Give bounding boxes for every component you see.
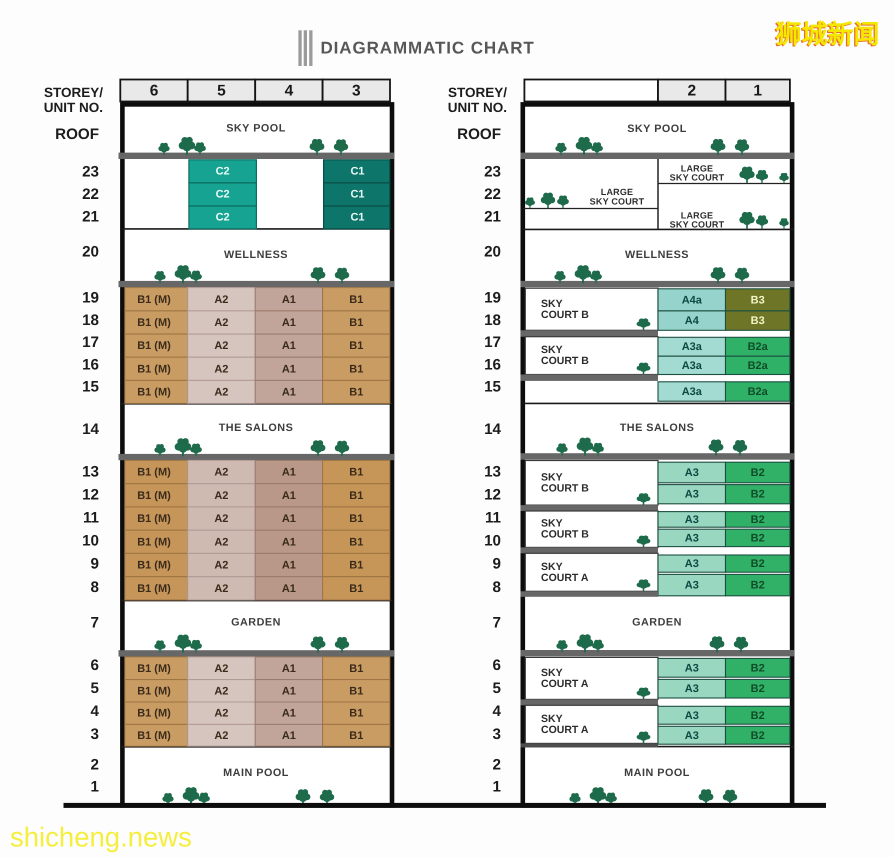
svg-text:A1: A1	[282, 490, 296, 502]
svg-text:UNIT NO.: UNIT NO.	[44, 100, 103, 115]
svg-text:A1: A1	[282, 340, 296, 352]
svg-text:B1: B1	[349, 386, 363, 398]
svg-text:A2: A2	[214, 386, 228, 398]
svg-text:MAIN POOL: MAIN POOL	[624, 767, 690, 779]
svg-text:A3a: A3a	[682, 360, 703, 372]
svg-text:B1 (M): B1 (M)	[137, 363, 171, 375]
svg-text:15: 15	[484, 379, 501, 396]
svg-text:3: 3	[91, 726, 99, 743]
svg-text:6: 6	[493, 657, 501, 674]
svg-text:23: 23	[484, 163, 501, 180]
svg-text:B1 (M): B1 (M)	[137, 583, 171, 595]
svg-text:C1: C1	[350, 165, 364, 177]
svg-text:1: 1	[91, 779, 100, 796]
svg-text:A1: A1	[282, 685, 296, 697]
svg-text:11: 11	[485, 510, 502, 527]
svg-text:7: 7	[493, 615, 501, 632]
svg-text:B1: B1	[349, 490, 363, 502]
svg-text:A1: A1	[282, 708, 296, 720]
svg-text:18: 18	[82, 312, 99, 329]
svg-text:B1: B1	[349, 340, 363, 352]
svg-text:19: 19	[484, 289, 501, 306]
svg-text:8: 8	[91, 579, 99, 596]
svg-text:A2: A2	[214, 708, 228, 720]
svg-text:SKY POOL: SKY POOL	[226, 123, 286, 135]
svg-text:A2: A2	[214, 513, 228, 525]
svg-text:A3: A3	[685, 558, 699, 570]
svg-text:DIAGRAMMATIC CHART: DIAGRAMMATIC CHART	[321, 39, 535, 58]
svg-text:A1: A1	[282, 560, 296, 572]
svg-text:12: 12	[484, 487, 501, 504]
svg-text:2: 2	[687, 83, 696, 100]
svg-text:B2a: B2a	[748, 341, 769, 353]
svg-text:21: 21	[82, 209, 99, 226]
svg-text:A1: A1	[282, 363, 296, 375]
svg-text:C1: C1	[350, 211, 364, 223]
svg-text:1: 1	[493, 779, 502, 796]
svg-text:B1 (M): B1 (M)	[137, 663, 171, 675]
svg-text:14: 14	[82, 421, 99, 438]
svg-text:21: 21	[484, 209, 501, 226]
svg-text:B1: B1	[349, 730, 363, 742]
svg-text:B2: B2	[751, 467, 765, 479]
svg-text:B1: B1	[349, 467, 363, 479]
svg-text:B1: B1	[349, 363, 363, 375]
svg-text:COURT A: COURT A	[541, 678, 589, 690]
svg-text:B2: B2	[751, 580, 765, 592]
svg-text:A3: A3	[685, 710, 699, 722]
svg-text:22: 22	[82, 186, 99, 203]
svg-text:GARDEN: GARDEN	[231, 617, 281, 629]
svg-text:B2: B2	[751, 710, 765, 722]
svg-text:16: 16	[82, 356, 99, 373]
svg-text:5: 5	[493, 680, 502, 697]
svg-text:A4a: A4a	[682, 294, 703, 306]
svg-text:13: 13	[82, 463, 99, 480]
svg-text:A3: A3	[685, 580, 699, 592]
svg-text:A3: A3	[685, 532, 699, 544]
svg-text:B2: B2	[751, 514, 765, 526]
svg-text:STOREY/: STOREY/	[448, 85, 507, 100]
svg-text:C2: C2	[216, 165, 230, 177]
svg-text:3: 3	[352, 83, 361, 100]
svg-text:B1 (M): B1 (M)	[137, 294, 171, 306]
svg-text:B1 (M): B1 (M)	[137, 513, 171, 525]
svg-text:C2: C2	[216, 211, 230, 223]
svg-text:9: 9	[91, 556, 99, 573]
svg-text:B1 (M): B1 (M)	[137, 317, 171, 329]
svg-text:MAIN POOL: MAIN POOL	[223, 767, 289, 779]
svg-text:A1: A1	[282, 467, 296, 479]
svg-text:A1: A1	[282, 663, 296, 675]
svg-text:B1 (M): B1 (M)	[137, 490, 171, 502]
svg-text:A3: A3	[685, 730, 699, 742]
svg-text:A1: A1	[282, 513, 296, 525]
svg-text:A3a: A3a	[682, 386, 703, 398]
svg-text:B2: B2	[751, 730, 765, 742]
svg-text:17: 17	[484, 334, 501, 351]
svg-text:19: 19	[82, 289, 99, 306]
svg-text:5: 5	[91, 680, 100, 697]
svg-text:A2: A2	[214, 294, 228, 306]
svg-text:9: 9	[493, 556, 501, 573]
svg-text:A2: A2	[214, 490, 228, 502]
svg-text:A3: A3	[685, 467, 699, 479]
svg-text:C2: C2	[216, 188, 230, 200]
svg-text:COURT A: COURT A	[541, 572, 589, 584]
svg-text:2: 2	[493, 757, 501, 774]
svg-text:A2: A2	[214, 730, 228, 742]
svg-text:B1 (M): B1 (M)	[137, 685, 171, 697]
svg-text:A2: A2	[214, 583, 228, 595]
svg-text:B2: B2	[751, 489, 765, 501]
svg-text:A1: A1	[282, 317, 296, 329]
svg-text:A3a: A3a	[682, 341, 703, 353]
svg-text:10: 10	[82, 533, 99, 550]
svg-text:COURT B: COURT B	[541, 309, 589, 321]
svg-text:B1: B1	[349, 317, 363, 329]
svg-text:4: 4	[91, 703, 100, 720]
svg-text:B1 (M): B1 (M)	[137, 536, 171, 548]
svg-text:COURT B: COURT B	[541, 529, 589, 541]
svg-text:A3: A3	[685, 683, 699, 695]
svg-text:COURT A: COURT A	[541, 724, 589, 736]
svg-text:5: 5	[217, 83, 226, 100]
svg-text:15: 15	[82, 379, 99, 396]
svg-text:A1: A1	[282, 730, 296, 742]
svg-text:WELLNESS: WELLNESS	[224, 249, 288, 261]
svg-text:23: 23	[82, 163, 99, 180]
svg-text:B1: B1	[349, 513, 363, 525]
svg-text:B2: B2	[751, 558, 765, 570]
svg-text:B1: B1	[349, 560, 363, 572]
svg-text:COURT B: COURT B	[541, 482, 589, 494]
svg-text:A2: A2	[214, 363, 228, 375]
svg-text:ROOF: ROOF	[457, 126, 501, 143]
svg-text:A1: A1	[282, 386, 296, 398]
svg-text:ROOF: ROOF	[55, 126, 99, 143]
svg-text:B1: B1	[349, 583, 363, 595]
svg-text:A1: A1	[282, 536, 296, 548]
svg-text:狮城新闻: 狮城新闻	[775, 19, 879, 49]
svg-text:A2: A2	[214, 340, 228, 352]
svg-text:B3: B3	[751, 294, 765, 306]
svg-text:16: 16	[484, 356, 501, 373]
svg-text:B1: B1	[349, 663, 363, 675]
svg-text:A2: A2	[214, 663, 228, 675]
svg-text:20: 20	[82, 244, 99, 261]
svg-text:A2: A2	[214, 467, 228, 479]
svg-text:THE SALONS: THE SALONS	[620, 422, 695, 434]
svg-text:A2: A2	[214, 685, 228, 697]
svg-text:WELLNESS: WELLNESS	[625, 249, 689, 261]
svg-text:COURT B: COURT B	[541, 355, 589, 367]
svg-text:B1 (M): B1 (M)	[137, 386, 171, 398]
svg-text:STOREY/: STOREY/	[44, 85, 103, 100]
svg-text:UNIT NO.: UNIT NO.	[448, 100, 507, 115]
svg-text:A2: A2	[214, 560, 228, 572]
svg-text:B1: B1	[349, 536, 363, 548]
svg-text:B1: B1	[349, 685, 363, 697]
svg-text:B1: B1	[349, 294, 363, 306]
svg-text:22: 22	[484, 186, 501, 203]
svg-text:A3: A3	[685, 662, 699, 674]
svg-text:A2: A2	[214, 317, 228, 329]
svg-text:8: 8	[493, 579, 501, 596]
svg-text:C1: C1	[350, 188, 364, 200]
svg-text:13: 13	[484, 463, 501, 480]
svg-text:SKY COURT: SKY COURT	[670, 220, 725, 230]
svg-text:18: 18	[484, 312, 501, 329]
svg-text:A1: A1	[282, 294, 296, 306]
svg-text:20: 20	[484, 244, 501, 261]
svg-text:2: 2	[91, 757, 99, 774]
svg-text:B1 (M): B1 (M)	[137, 340, 171, 352]
svg-text:B2a: B2a	[748, 386, 769, 398]
svg-text:B1 (M): B1 (M)	[137, 560, 171, 572]
svg-text:GARDEN: GARDEN	[632, 617, 682, 629]
svg-text:B2a: B2a	[748, 360, 769, 372]
svg-text:A4: A4	[685, 315, 700, 327]
svg-text:B2: B2	[751, 662, 765, 674]
svg-text:B1 (M): B1 (M)	[137, 730, 171, 742]
svg-text:A3: A3	[685, 514, 699, 526]
svg-text:17: 17	[82, 334, 99, 351]
svg-text:LARGE: LARGE	[601, 187, 634, 197]
svg-text:THE SALONS: THE SALONS	[219, 422, 294, 434]
svg-text:B2: B2	[751, 532, 765, 544]
svg-text:B1 (M): B1 (M)	[137, 467, 171, 479]
svg-text:SKY POOL: SKY POOL	[627, 123, 687, 135]
svg-text:11: 11	[83, 510, 100, 527]
svg-text:A1: A1	[282, 583, 296, 595]
svg-text:14: 14	[484, 421, 501, 438]
svg-text:4: 4	[285, 83, 294, 100]
svg-text:SKY COURT: SKY COURT	[590, 196, 645, 206]
svg-text:10: 10	[484, 533, 501, 550]
svg-text:4: 4	[493, 703, 502, 720]
svg-text:SKY COURT: SKY COURT	[670, 173, 725, 183]
svg-text:6: 6	[150, 83, 159, 100]
svg-text:A2: A2	[214, 536, 228, 548]
svg-text:shicheng.news: shicheng.news	[10, 822, 192, 853]
svg-text:3: 3	[493, 726, 501, 743]
svg-text:1: 1	[753, 83, 762, 100]
svg-text:B1: B1	[349, 708, 363, 720]
svg-text:12: 12	[82, 487, 99, 504]
svg-text:B2: B2	[751, 683, 765, 695]
svg-text:B1 (M): B1 (M)	[137, 708, 171, 720]
svg-text:B3: B3	[751, 315, 765, 327]
svg-text:7: 7	[91, 615, 99, 632]
svg-text:6: 6	[91, 657, 99, 674]
svg-text:A3: A3	[685, 489, 699, 501]
